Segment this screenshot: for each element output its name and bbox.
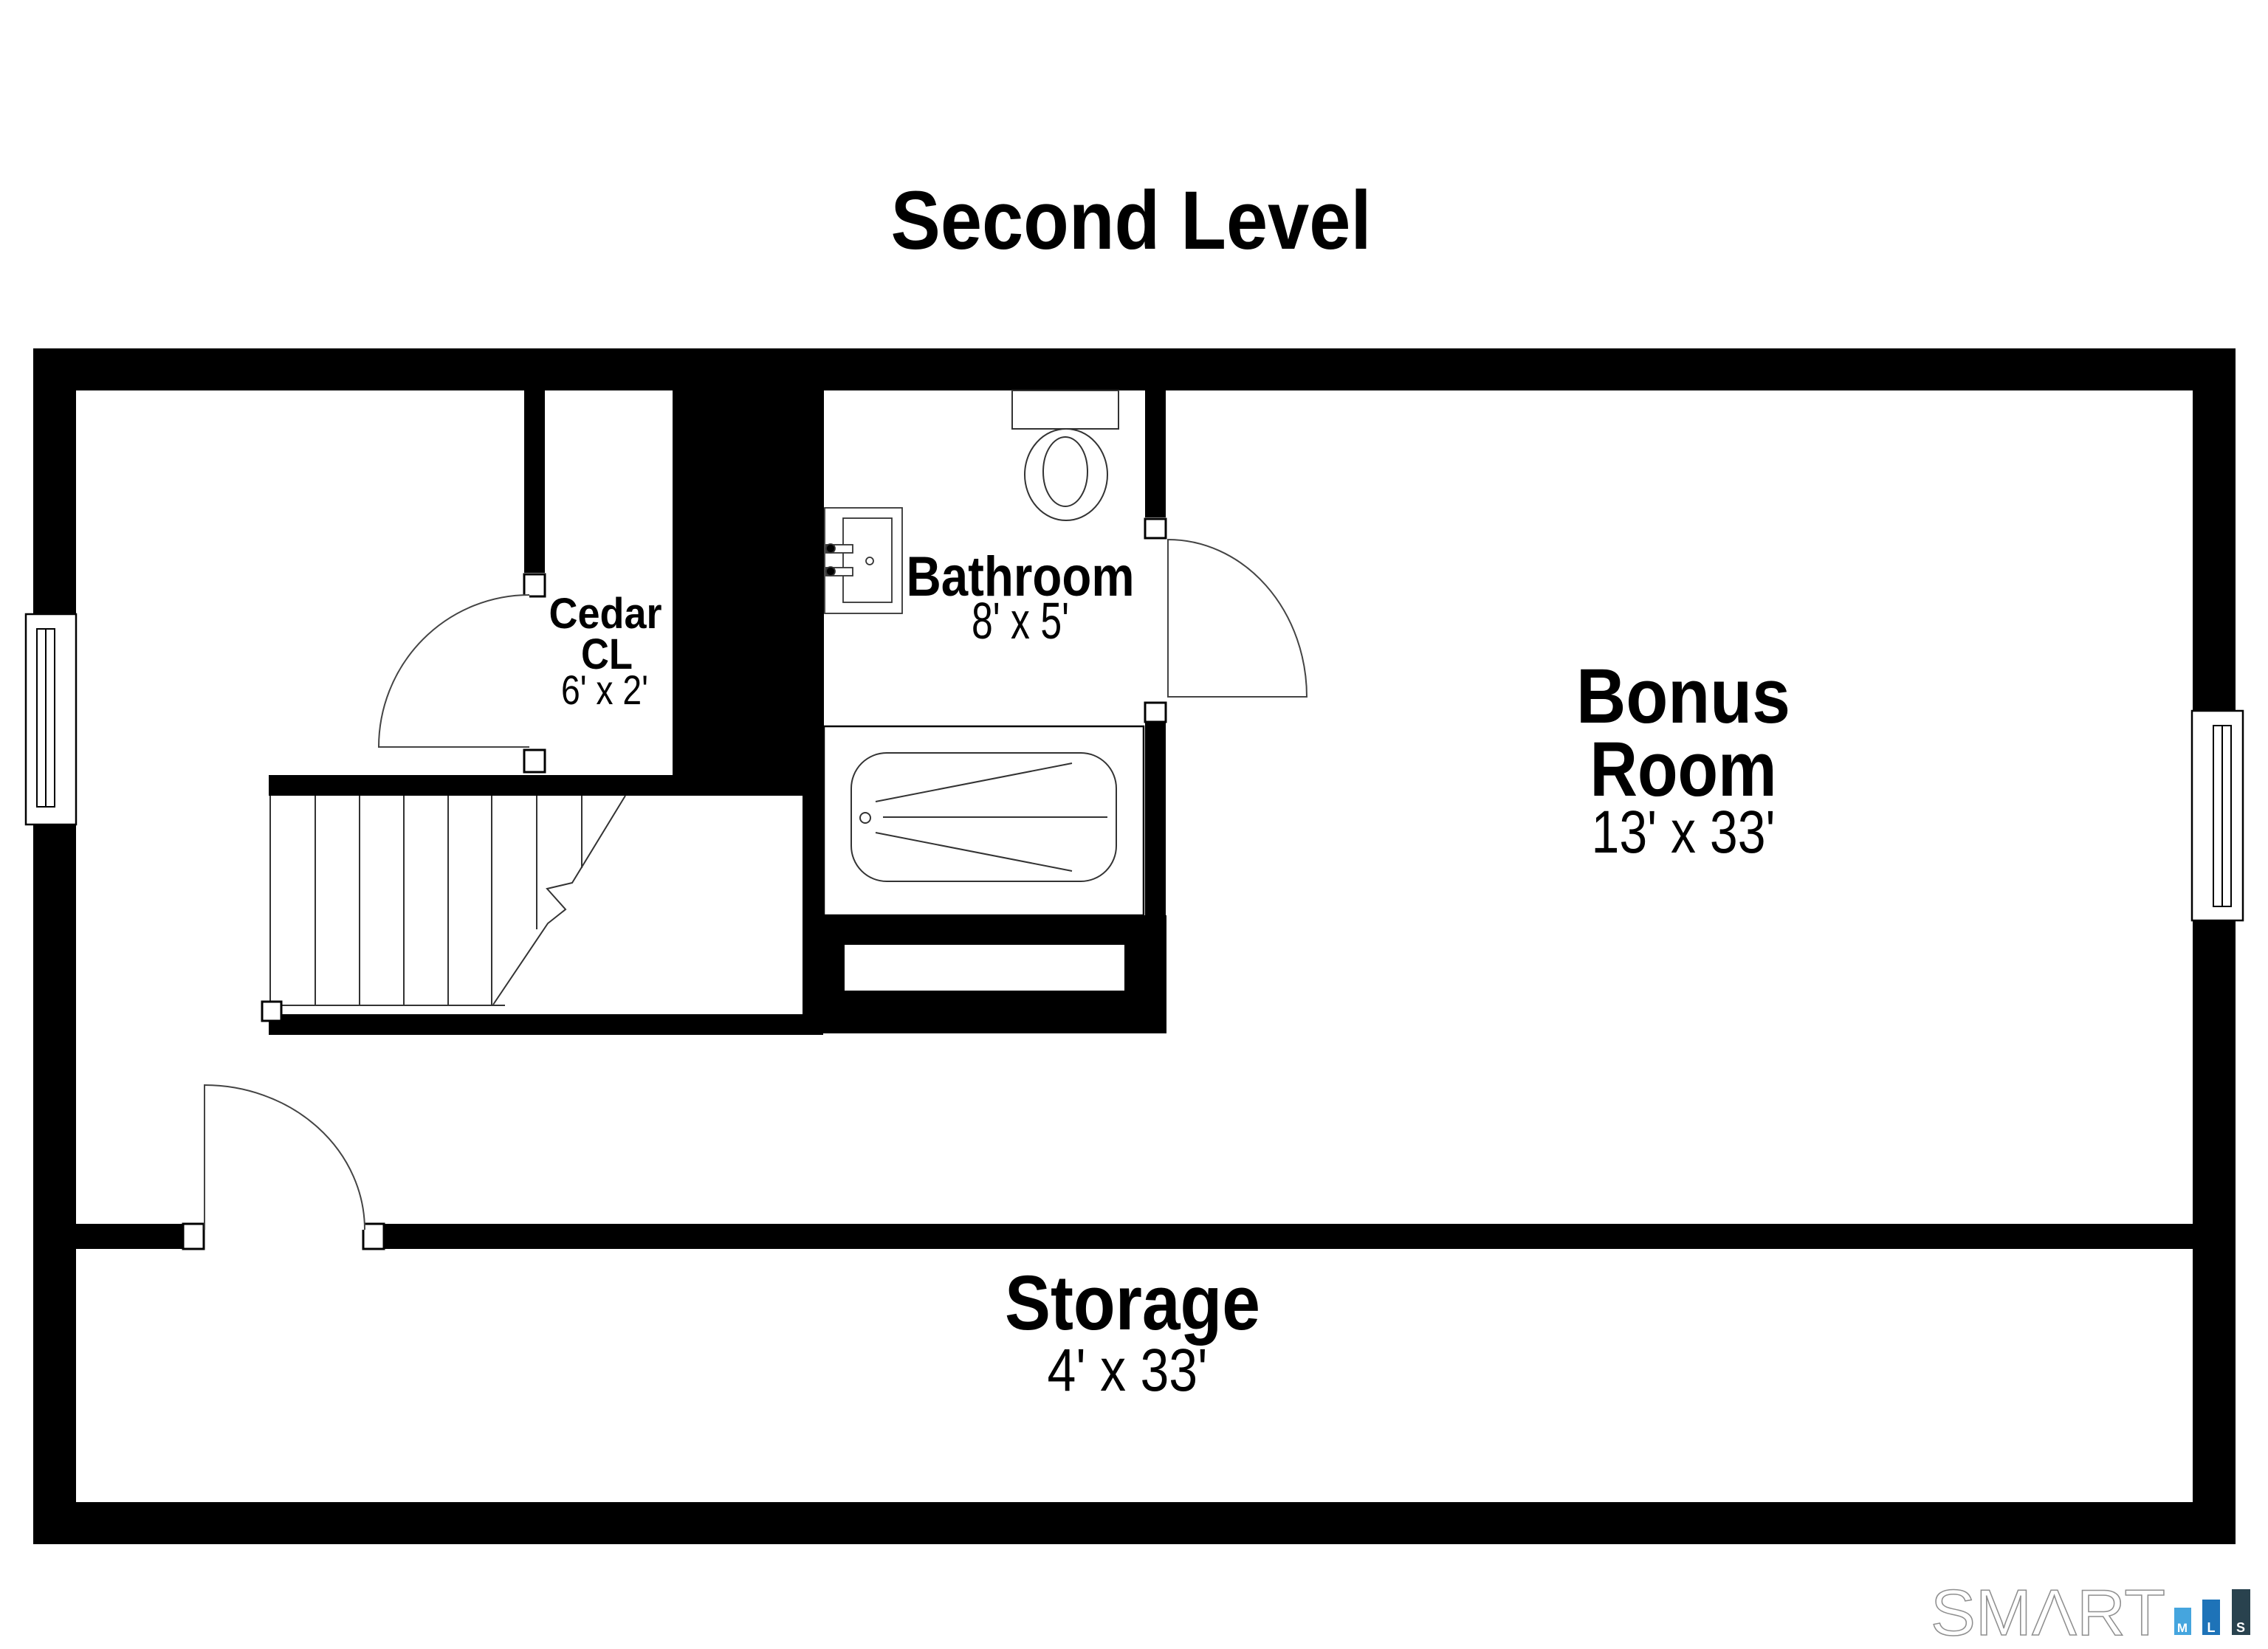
svg-text:13' x 33': 13' x 33' [1592,799,1776,866]
svg-text:8' x 5': 8' x 5' [972,592,1069,650]
svg-text:6' x 2': 6' x 2' [561,667,648,713]
svg-text:L: L [2207,1620,2216,1635]
svg-text:M: M [2177,1621,2188,1635]
svg-text:4' x 33': 4' x 33' [1048,1337,1208,1404]
svg-text:Storage: Storage [1005,1260,1260,1346]
svg-text:Second Level: Second Level [891,174,1372,266]
svg-text:SMΛRT: SMΛRT [1931,1576,2165,1649]
svg-text:S: S [2236,1620,2245,1635]
